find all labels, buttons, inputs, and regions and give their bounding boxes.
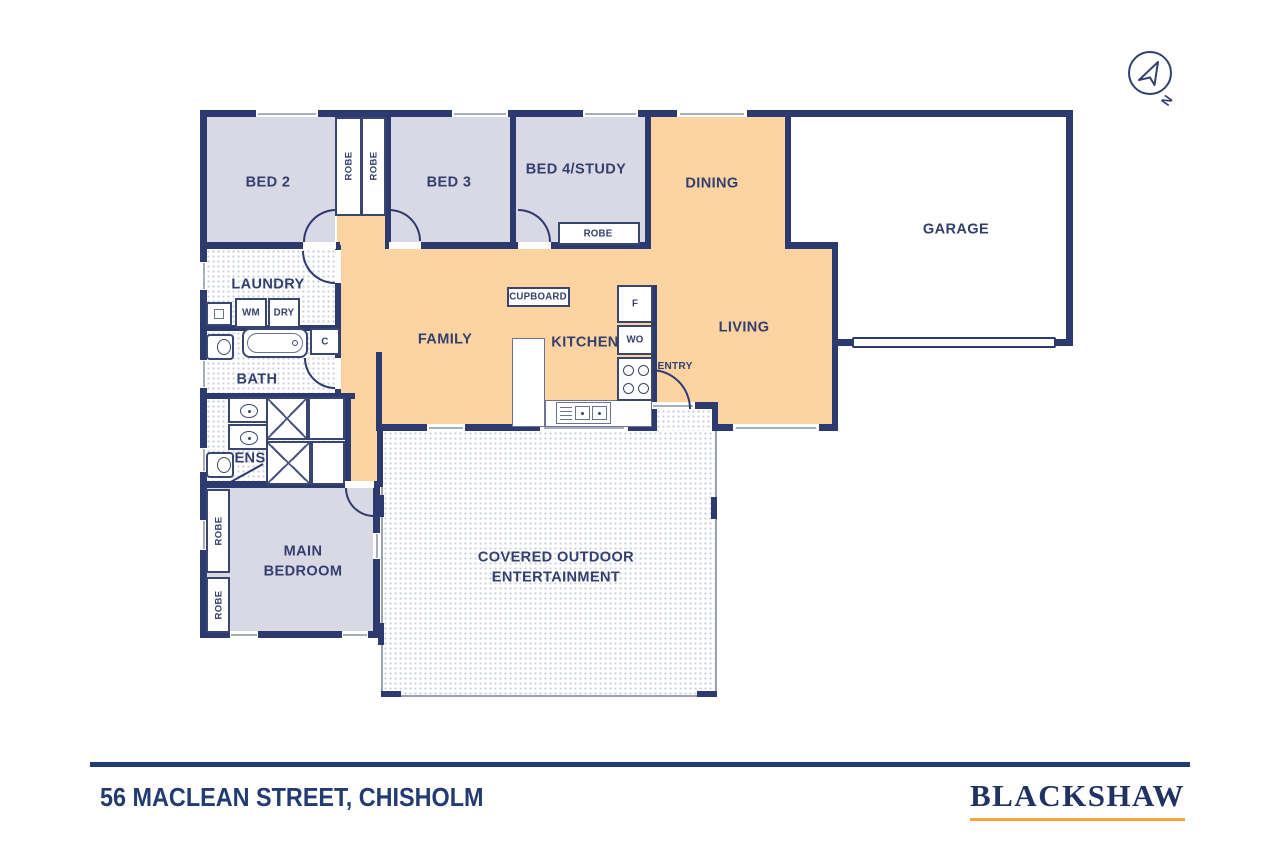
fixture-label-cupboard: CUPBOARD [509,292,567,303]
window [733,424,819,431]
drainer-line [560,411,572,412]
laundry-tub [206,302,232,326]
footer-divider [90,762,1190,767]
drainer-line [560,415,572,416]
window [373,533,380,559]
room-label-living: LIVING [719,319,770,336]
floorplan-page: BED 2 BED 3 BED 4/STUDY DINING GARAGE LA… [0,0,1280,853]
wall [785,242,838,249]
door-opening [335,358,341,389]
shower [266,441,311,485]
basin-drain [248,437,251,440]
room-label-bath: BATH [237,371,278,388]
fixture-label-robe: ROBE [369,151,380,180]
window [256,110,318,117]
post [711,497,717,519]
laundry-tub-bowl [214,309,224,319]
corridor-floor [351,431,377,487]
vanity-basin [228,397,268,423]
window [583,110,638,117]
toilet-bowl [217,457,231,473]
agency-logo: BLACKSHAW [970,778,1185,821]
window [200,262,207,290]
cooktop [617,357,653,401]
window [342,631,368,638]
cupboard-unit [308,397,345,440]
fixture-label-robe: ROBE [214,516,225,545]
burner [623,365,634,376]
compass-icon [1126,49,1174,97]
door-opening [518,242,551,249]
post [378,495,384,517]
fixture-label-robe: ROBE [584,229,613,240]
room-label-bed4: BED 4/STUDY [526,161,626,178]
room-label-laundry: LAUNDRY [231,276,304,293]
burner [638,383,649,394]
post [697,691,717,697]
vanity-basin [228,424,268,450]
door-opening [389,242,421,249]
wall [377,431,383,487]
room-label-main-bedroom: MAIN BEDROOM [256,542,349,581]
burner [638,365,649,376]
sink-drain [581,412,584,415]
toilet [206,452,234,478]
fixture-label-dry: DRY [274,308,295,319]
fixture-label-c: C [321,337,328,348]
post [378,623,384,645]
window [230,631,258,638]
fixture-label-robe: ROBE [344,151,355,180]
room-label-bed2: BED 2 [246,174,291,191]
bathtub-drain [292,340,298,346]
fixture-label-robe: ROBE [214,590,225,619]
wall [345,396,351,487]
room-label-outdoor: COVERED OUTDOOR ENTERTAINMENT [469,548,644,587]
door-opening [335,250,341,283]
fixture-label-wo: WO [626,335,643,346]
garage-door [852,337,1056,348]
toilet-bowl [217,339,231,355]
hall-floor [337,216,391,245]
room-label-family: FAMILY [418,331,472,348]
room-label-ens: ENS [234,450,265,467]
basin-drain [248,410,251,413]
north-compass: N [1126,49,1182,113]
bathtub [242,328,308,358]
room-label-entry: ENTRY [657,360,692,372]
door-opening [345,481,374,488]
wall [376,352,382,431]
room-label-garage: GARAGE [923,221,989,238]
drainer-line [560,419,572,420]
entry-porch-floor [651,409,712,431]
window [452,110,508,117]
door-opening [303,242,336,249]
window [677,110,747,117]
wall [785,117,791,249]
toilet [206,334,234,360]
kitchen-sink [556,402,611,424]
shower [266,397,308,440]
fixture-label-wm: WM [242,308,260,319]
burner [623,383,634,394]
drainer-line [560,407,572,408]
post [381,691,401,697]
room-label-bed3: BED 3 [427,174,472,191]
room-label-kitchen: KITCHEN [551,334,618,351]
fixture-label-f: F [632,299,638,310]
room-label-dining: DINING [685,175,738,192]
cupboard-unit [311,441,345,485]
sink-drain [598,412,601,415]
window [200,360,207,388]
wall [510,117,516,249]
wall [645,117,651,249]
property-address: 56 MACLEAN STREET, CHISHOLM [100,782,484,813]
kitchen-bench [512,338,545,427]
sliding-door [427,424,465,431]
wall [1066,110,1073,346]
